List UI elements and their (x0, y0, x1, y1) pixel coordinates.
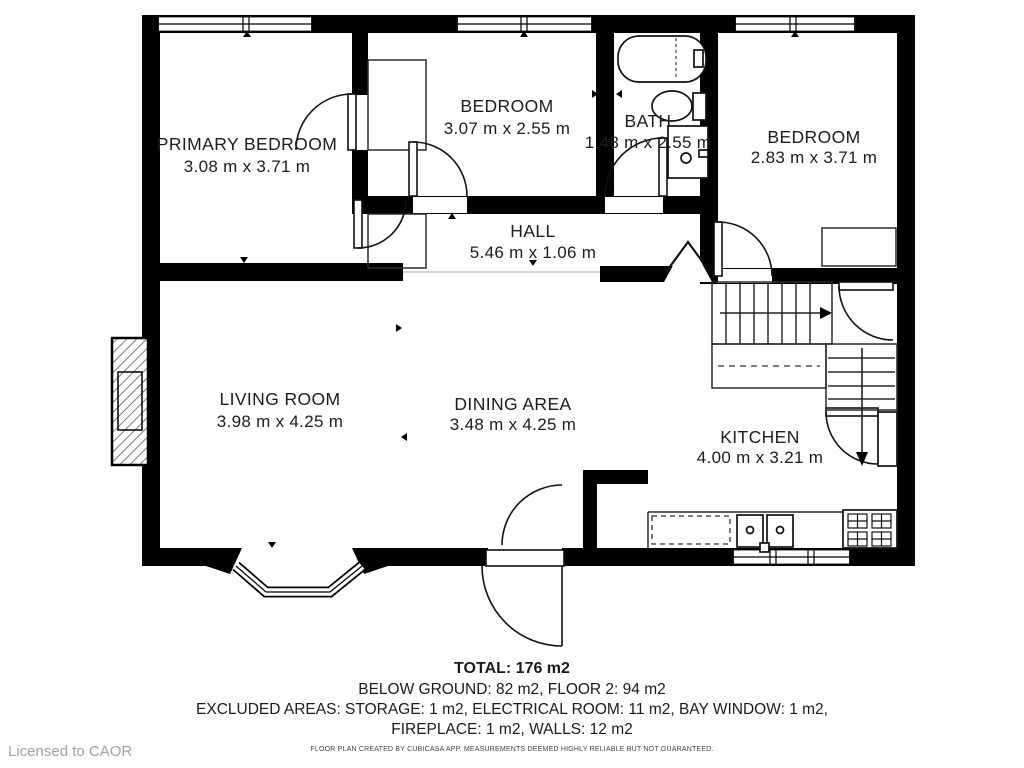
area-summary: TOTAL: 176 m2 BELOW GROUND: 82 m2, FLOOR… (0, 660, 1024, 753)
floorplan-page: PRIMARY BEDROOM 3.08 m x 3.71 m BEDROOM … (0, 0, 1024, 768)
total-area: TOTAL: 176 m2 (0, 660, 1024, 678)
room-label-primary-bedroom: PRIMARY BEDROOM (157, 134, 337, 154)
room-dims-kitchen: 4.00 m x 3.21 m (697, 448, 823, 467)
dishwasher (652, 516, 730, 544)
room-dims-primary-bedroom: 3.08 m x 3.71 m (184, 157, 310, 176)
room-label-bedroom-middle: BEDROOM (460, 96, 553, 116)
excluded-areas-line2: FIREPLACE: 1 m2, WALLS: 12 m2 (0, 721, 1024, 739)
room-label-dining-area: DINING AREA (454, 394, 571, 414)
fireplace (112, 338, 148, 465)
license-note: Licensed to CAOR (8, 743, 132, 760)
room-dims-bedroom-right: 2.83 m x 3.71 m (751, 148, 877, 167)
disclaimer: FLOOR PLAN CREATED BY CUBICASA APP. MEAS… (0, 746, 1024, 753)
bathtub (618, 36, 706, 82)
room-dims-bedroom-middle: 3.07 m x 2.55 m (444, 119, 570, 138)
room-label-bath: BATH (625, 111, 672, 131)
room-dims-hall: 5.46 m x 1.06 m (470, 243, 596, 262)
room-label-hall: HALL (510, 221, 555, 241)
room-dims-living-room: 3.98 m x 4.25 m (217, 412, 343, 431)
room-label-living-room: LIVING ROOM (219, 389, 340, 409)
floors-area: BELOW GROUND: 82 m2, FLOOR 2: 94 m2 (0, 681, 1024, 699)
room-label-kitchen: KITCHEN (720, 427, 800, 447)
room-dims-bath: 1.48 m x 2.55 m (585, 133, 711, 152)
bay-window (206, 548, 388, 592)
excluded-areas-line1: EXCLUDED AREAS: STORAGE: 1 m2, ELECTRICA… (0, 701, 1024, 719)
room-dims-dining-area: 3.48 m x 4.25 m (450, 415, 576, 434)
room-label-bedroom-right: BEDROOM (767, 127, 860, 147)
floor-plan: PRIMARY BEDROOM 3.08 m x 3.71 m BEDROOM … (0, 0, 1024, 768)
refrigerator (878, 412, 897, 466)
